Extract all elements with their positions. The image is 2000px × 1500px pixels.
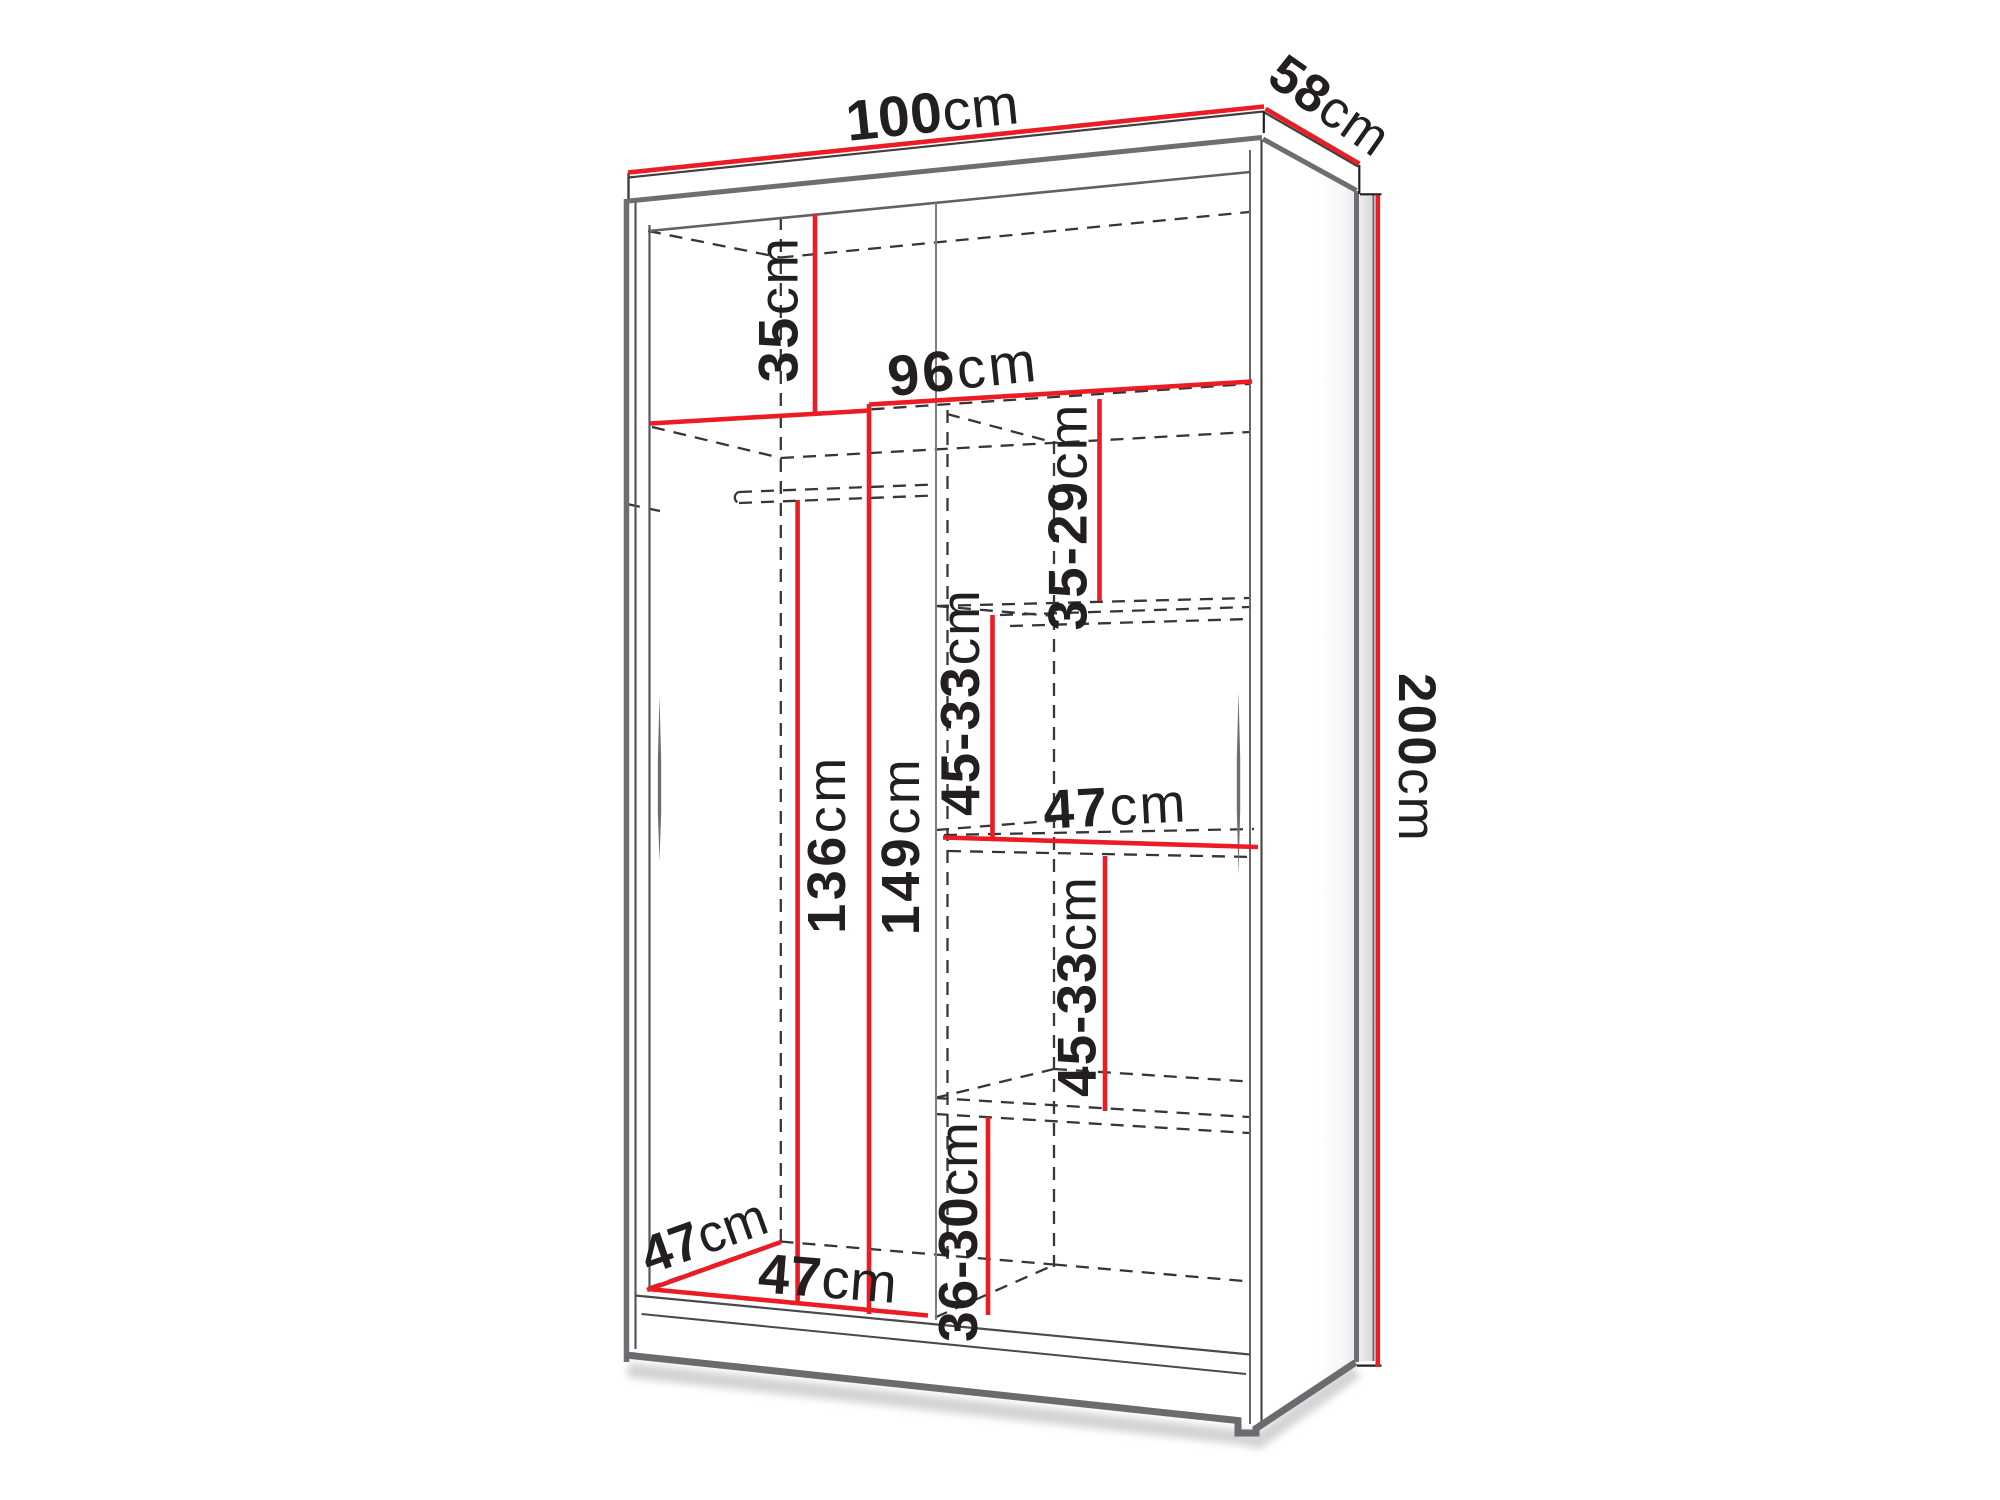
svg-text:36-30cm: 36-30cm bbox=[927, 1121, 989, 1342]
svg-text:45-33cm: 45-33cm bbox=[929, 588, 991, 816]
svg-text:149cm: 149cm bbox=[871, 756, 931, 936]
svg-text:200cm: 200cm bbox=[1388, 673, 1447, 843]
svg-text:136cm: 136cm bbox=[797, 754, 857, 934]
svg-text:45-33cm: 45-33cm bbox=[1046, 876, 1108, 1097]
svg-text:35cm: 35cm bbox=[746, 236, 809, 383]
svg-text:47cm: 47cm bbox=[756, 1241, 899, 1315]
svg-text:47cm: 47cm bbox=[1042, 771, 1190, 840]
svg-text:35-29cm: 35-29cm bbox=[1037, 403, 1099, 631]
